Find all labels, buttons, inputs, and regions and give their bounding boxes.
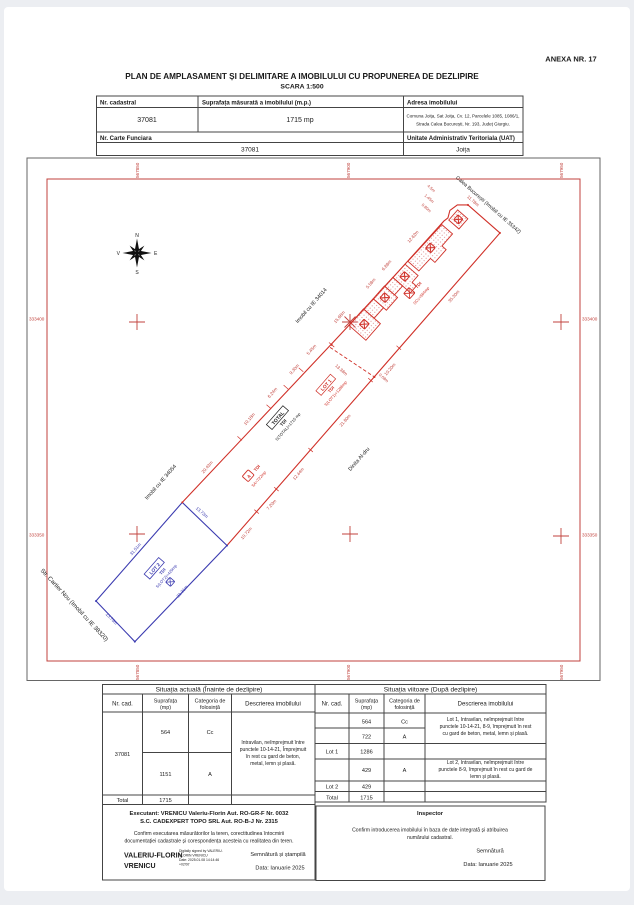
svg-text:Adresa imobilului: Adresa imobilului bbox=[407, 101, 458, 107]
svg-text:1151: 1151 bbox=[159, 772, 171, 778]
svg-text:564: 564 bbox=[362, 720, 371, 726]
svg-text:1715: 1715 bbox=[360, 796, 372, 802]
svg-text:S.C. CADEXPERT TOPO SRL Aut. R: S.C. CADEXPERT TOPO SRL Aut. RO-B-J Nr. … bbox=[140, 819, 279, 825]
svg-text:(mp): (mp) bbox=[361, 705, 372, 711]
svg-text:567850: 567850 bbox=[135, 162, 140, 178]
svg-text:folosință: folosință bbox=[394, 705, 414, 711]
svg-text:Semnătură: Semnătură bbox=[476, 849, 504, 855]
svg-text:567900: 567900 bbox=[346, 162, 351, 178]
svg-text:Inspector: Inspector bbox=[417, 811, 444, 817]
svg-text:Descrierea imobilului: Descrierea imobilului bbox=[458, 702, 514, 708]
svg-text:Total: Total bbox=[326, 796, 338, 802]
svg-text:333350: 333350 bbox=[29, 533, 45, 538]
svg-text:Semnătură și ștampilă: Semnătură și ștampilă bbox=[250, 852, 306, 858]
svg-text:1715: 1715 bbox=[159, 798, 171, 804]
svg-text:Digitally signed by VALERIU-: Digitally signed by VALERIU- bbox=[179, 849, 223, 853]
svg-text:ANEXA NR. 17: ANEXA NR. 17 bbox=[545, 55, 596, 64]
svg-text:564: 564 bbox=[161, 730, 170, 736]
svg-text:567950: 567950 bbox=[559, 664, 564, 680]
svg-text:37081: 37081 bbox=[241, 147, 259, 154]
svg-text:Confirm introducerea imobilulu: Confirm introducerea imobilului în baza … bbox=[352, 828, 508, 834]
svg-text:în rest cu gard de beton,: în rest cu gard de beton, bbox=[245, 754, 300, 760]
svg-text:Suprafața: Suprafața bbox=[154, 699, 177, 705]
svg-text:Data: Ianuarie 2025: Data: Ianuarie 2025 bbox=[255, 866, 304, 872]
svg-text:punctele 10-14-21, Împrejmuit: punctele 10-14-21, Împrejmuit bbox=[240, 746, 307, 753]
svg-text:Nr. cad.: Nr. cad. bbox=[112, 702, 133, 708]
svg-text:Lot 2, Intravilan, neîmprejmui: Lot 2, Intravilan, neîmprejmuit între bbox=[447, 760, 524, 766]
svg-text:Total: Total bbox=[117, 798, 129, 804]
svg-text:Cc: Cc bbox=[401, 720, 408, 726]
svg-text:SCARA 1:500: SCARA 1:500 bbox=[280, 84, 323, 91]
svg-text:(mp): (mp) bbox=[160, 705, 171, 711]
svg-text:1286: 1286 bbox=[360, 750, 372, 756]
svg-text:722: 722 bbox=[362, 735, 371, 741]
svg-text:lemn și plasă.: lemn și plasă. bbox=[470, 774, 501, 780]
svg-text:Strada Calea București, Nr. 19: Strada Calea București, Nr. 193, Județ G… bbox=[416, 122, 510, 127]
svg-text:Confirm executarea măsurătoril: Confirm executarea măsurătorilor la tere… bbox=[134, 831, 284, 837]
svg-text:567900: 567900 bbox=[346, 664, 351, 680]
svg-text:567950: 567950 bbox=[559, 162, 564, 178]
svg-text:punctele 10-14-21, 8-9, împrej: punctele 10-14-21, 8-9, împrejmuit în re… bbox=[440, 724, 532, 730]
svg-text:A: A bbox=[208, 772, 212, 778]
svg-text:333400: 333400 bbox=[29, 317, 45, 322]
svg-text:333350: 333350 bbox=[582, 533, 598, 538]
svg-text:333400: 333400 bbox=[582, 317, 598, 322]
svg-text:Categoria de: Categoria de bbox=[195, 699, 226, 705]
svg-text:numărului cadastral.: numărului cadastral. bbox=[407, 835, 453, 841]
svg-text:Nr. cad.: Nr. cad. bbox=[322, 702, 343, 708]
svg-text:Lot 1: Lot 1 bbox=[326, 750, 338, 756]
svg-text:FLORIN VRENICU: FLORIN VRENICU bbox=[179, 854, 208, 858]
svg-text:37081: 37081 bbox=[115, 752, 131, 758]
svg-text:567850: 567850 bbox=[135, 664, 140, 680]
svg-text:Date: 2025.01.08 14:14:46: Date: 2025.01.08 14:14:46 bbox=[179, 858, 219, 862]
svg-text:1715 mp: 1715 mp bbox=[286, 117, 313, 124]
svg-text:Nr. cadastral: Nr. cadastral bbox=[100, 101, 136, 107]
svg-text:Descrierea imobilului: Descrierea imobilului bbox=[245, 702, 301, 708]
svg-text:Data: Ianuarie 2025: Data: Ianuarie 2025 bbox=[463, 862, 512, 868]
svg-text:+02'00': +02'00' bbox=[179, 863, 190, 867]
svg-text:429: 429 bbox=[362, 768, 371, 774]
svg-text:VRENICU: VRENICU bbox=[124, 863, 156, 870]
svg-text:Executant: VRENICU Valeriu-Fl: Executant: VRENICU Valeriu-Florin Aut. R… bbox=[130, 811, 289, 817]
svg-text:A: A bbox=[403, 735, 407, 741]
svg-text:37081: 37081 bbox=[137, 117, 157, 124]
svg-text:Joița: Joița bbox=[456, 147, 470, 154]
svg-text:Suprafața măsurată a imobilulu: Suprafața măsurată a imobilului (m.p.) bbox=[202, 101, 311, 107]
svg-text:N: N bbox=[135, 233, 139, 239]
svg-text:Cc: Cc bbox=[207, 730, 214, 736]
svg-text:metal, lemn și plasă.: metal, lemn și plasă. bbox=[250, 761, 296, 767]
svg-text:punctele 8-9, împrejmuit în re: punctele 8-9, împrejmuit în rest cu gard… bbox=[439, 767, 533, 773]
svg-text:Intravilan, neîmprejmuit între: Intravilan, neîmprejmuit între bbox=[241, 740, 305, 746]
svg-text:Situația actuală (Înainte de d: Situația actuală (Înainte de dezlipire) bbox=[156, 685, 263, 694]
svg-text:Lot 1, Intravilan, neîmprejmui: Lot 1, Intravilan, neîmprejmuit între bbox=[447, 717, 524, 723]
svg-text:PLAN DE AMPLASAMENT ȘI DELIMIT: PLAN DE AMPLASAMENT ȘI DELIMITARE A IMOB… bbox=[125, 72, 479, 81]
svg-text:Categoria de: Categoria de bbox=[389, 699, 420, 705]
svg-text:Suprafața: Suprafața bbox=[355, 699, 378, 705]
svg-text:Comuna Joița, Sat Joița, Cv. 1: Comuna Joița, Sat Joița, Cv. 12, Parcele… bbox=[407, 114, 520, 119]
svg-text:A: A bbox=[403, 768, 407, 774]
svg-text:Lot 2: Lot 2 bbox=[326, 785, 338, 791]
svg-text:VALERIU-FLORIN: VALERIU-FLORIN bbox=[124, 853, 183, 860]
svg-text:documentației cadastrale și co: documentației cadastrale și corespondenț… bbox=[124, 839, 293, 845]
svg-text:Nr. Carte Funciara: Nr. Carte Funciara bbox=[100, 136, 152, 142]
svg-text:429: 429 bbox=[362, 785, 371, 791]
svg-text:Unitate Administrativ Teritori: Unitate Administrativ Teritoriala (UAT) bbox=[407, 136, 515, 142]
svg-text:cu gard de beton, metal, lemn: cu gard de beton, metal, lemn și plasă. bbox=[443, 731, 529, 737]
svg-text:folosință: folosință bbox=[200, 705, 220, 711]
svg-text:Situația viitoare (După dezlip: Situația viitoare (După dezlipire) bbox=[384, 687, 477, 694]
